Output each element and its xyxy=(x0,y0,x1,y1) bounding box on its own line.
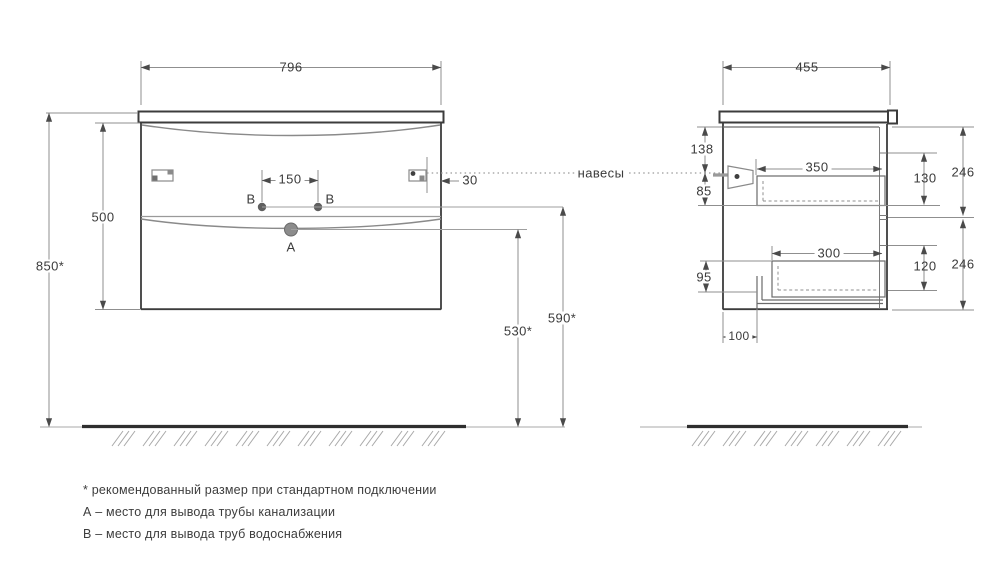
dim-530-label: 530* xyxy=(501,325,535,338)
dim-95-label: 95 xyxy=(693,271,714,284)
dim-590-label: 590* xyxy=(545,312,579,325)
front-carcass xyxy=(141,122,441,310)
footnote-point-b: В – место для вывода труб водоснабжения xyxy=(83,528,342,541)
dim-100-label: 100 xyxy=(725,330,752,342)
dim-138-label: 138 xyxy=(688,143,717,156)
front-left-hanger-bracket xyxy=(152,170,173,182)
point-b-right-label: B xyxy=(325,193,334,206)
front-view-cabinet xyxy=(139,112,444,310)
point-a-label: A xyxy=(286,241,295,254)
side-carcass xyxy=(723,122,888,310)
dim-150-label: 150 xyxy=(276,173,305,186)
dim-350-label: 350 xyxy=(803,161,832,174)
dim-850-label: 850* xyxy=(33,260,67,273)
footnote-point-a: А – место для вывода трубы канализации xyxy=(83,506,335,519)
floor-hatching-front xyxy=(112,431,445,446)
dim-120-label: 120 xyxy=(914,260,937,273)
front-countertop xyxy=(139,112,444,123)
dim-455-label: 455 xyxy=(796,61,819,74)
side-drain-pipe xyxy=(757,276,883,309)
dim-246-extensions xyxy=(888,127,974,310)
dim-796-label: 796 xyxy=(280,61,303,74)
dim-85-label: 85 xyxy=(693,185,714,198)
hangers-callout-label: навесы xyxy=(575,167,628,180)
front-sink-apron-curve xyxy=(142,125,440,136)
dim-246-upper-label: 246 xyxy=(952,166,975,179)
front-right-hanger-bracket xyxy=(409,170,426,181)
technical-drawing-page: 796 500 850* 150 30 B B A 530* 590* наве… xyxy=(0,0,1000,569)
dim-300-label: 300 xyxy=(815,247,844,260)
dim-130-label: 130 xyxy=(914,172,937,185)
point-b-left-label: B xyxy=(246,193,255,206)
side-view-cabinet xyxy=(713,111,897,310)
side-upper-drawer xyxy=(757,176,885,206)
side-lower-drawer xyxy=(772,261,885,297)
dim-30-label: 30 xyxy=(462,174,477,187)
footnote-recommended-size: * рекомендованный размер при стандартном… xyxy=(83,484,437,497)
side-countertop-edge xyxy=(888,111,897,124)
side-view-dimensions xyxy=(697,61,974,343)
floor-front xyxy=(40,427,565,447)
floor-side xyxy=(640,427,922,447)
side-hanger-bracket xyxy=(713,166,753,189)
side-countertop xyxy=(720,112,898,123)
dim-500-label: 500 xyxy=(89,211,118,224)
floor-hatching-side xyxy=(692,431,901,446)
side-drawer-fronts xyxy=(879,127,887,309)
dim-246-lower-label: 246 xyxy=(952,258,975,271)
